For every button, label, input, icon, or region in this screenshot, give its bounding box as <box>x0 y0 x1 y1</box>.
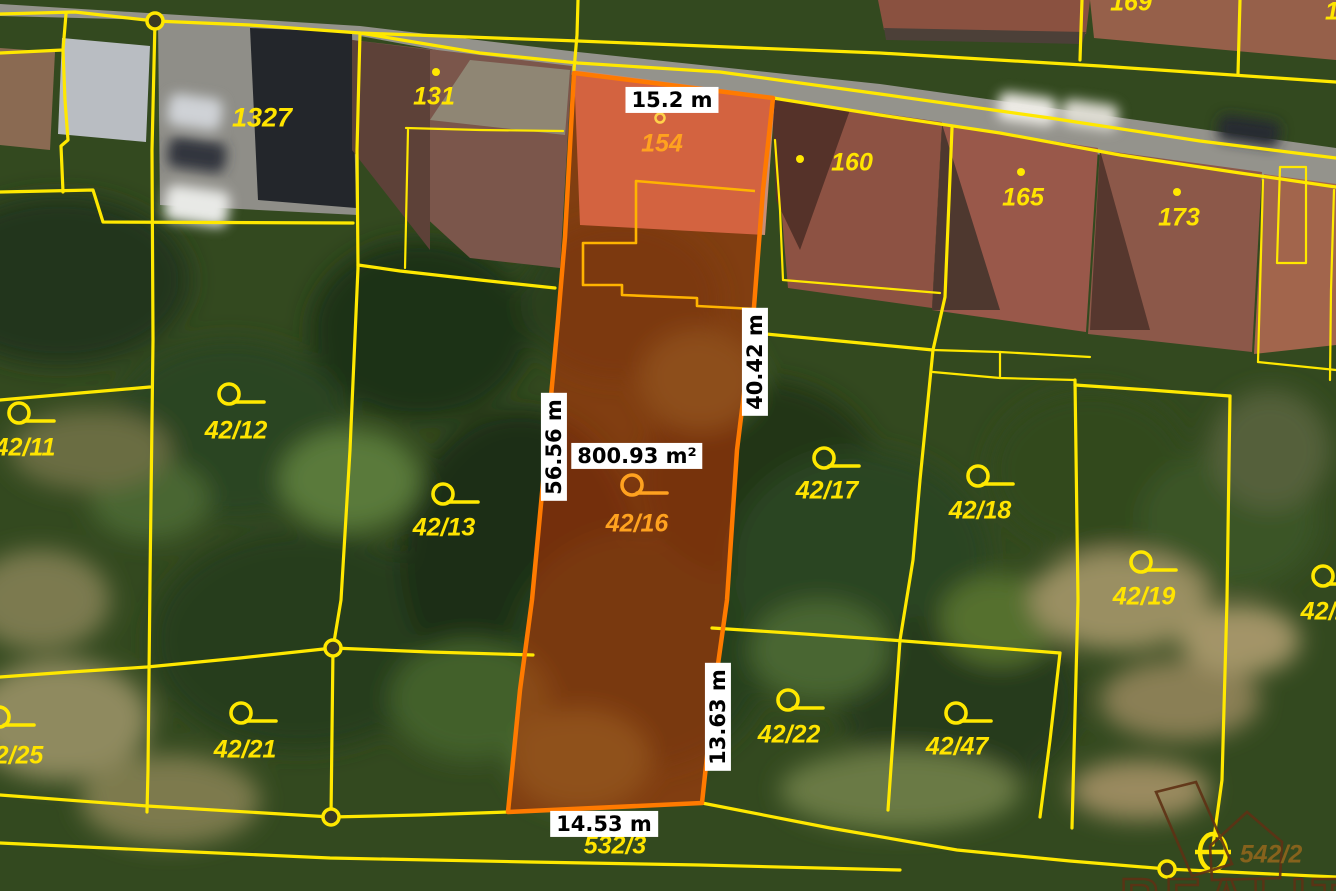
building-point-icons <box>432 68 1181 196</box>
parcel-label-42-18: 42/18 <box>949 499 1012 524</box>
parcel-label-42-19: 42/19 <box>1113 585 1176 610</box>
watermark-text: REALITY <box>1120 868 1336 891</box>
parcel-label-42-16: 42/16 <box>606 512 669 537</box>
measurement-bottom: 14.53 m <box>550 811 658 837</box>
parcel-label-42-13: 42/13 <box>413 516 476 541</box>
parcel-signature-icons <box>0 384 1336 727</box>
survey-marker-icon <box>1195 834 1231 870</box>
highlighted-parcel-signature-icon <box>622 475 667 495</box>
parcel-label-partial-1: 1 <box>1325 0 1336 25</box>
area-label: 800.93 m² <box>571 443 702 469</box>
aerial-cadastral-map[interactable]: REALITY 1327 131 154 160 165 169 173 1 4… <box>0 0 1336 891</box>
parcel-label-542-2: 542/2 <box>1240 843 1303 868</box>
parcel-label-169: 169 <box>1110 0 1152 16</box>
parcel-label-154: 154 <box>641 132 683 157</box>
vehicles <box>163 91 1282 228</box>
parcel-label-42-22: 42/22 <box>758 723 821 748</box>
watermark-logo: REALITY <box>1120 782 1336 891</box>
parcel-label-1327: 1327 <box>232 105 292 132</box>
parcel-label-42-47: 42/47 <box>926 735 989 760</box>
parcel-label-42-25: 42/25 <box>0 744 43 769</box>
parcel-label-160: 160 <box>831 151 873 176</box>
measurement-left: 56.56 m <box>541 393 567 501</box>
measurement-right-upper: 40.42 m <box>742 308 768 416</box>
parcel-label-532-3: 532/3 <box>584 834 647 859</box>
parcel-label-partial-42-2: 42/2 <box>1301 600 1336 625</box>
parcel-label-42-21: 42/21 <box>214 738 277 763</box>
parcel-label-173: 173 <box>1158 206 1200 231</box>
parcel-label-42-12: 42/12 <box>205 419 268 444</box>
parcel-label-165: 165 <box>1002 186 1044 211</box>
parcel-label-42-11: 42/11 <box>0 436 55 461</box>
carport-roof <box>58 38 150 142</box>
measurement-top: 15.2 m <box>625 87 718 113</box>
parcel-label-131: 131 <box>413 85 455 110</box>
measurement-right-lower: 13.63 m <box>705 663 731 771</box>
inner-division-line <box>583 181 755 309</box>
parcel-label-42-17: 42/17 <box>796 479 859 504</box>
buildings-roofs <box>0 0 1336 354</box>
